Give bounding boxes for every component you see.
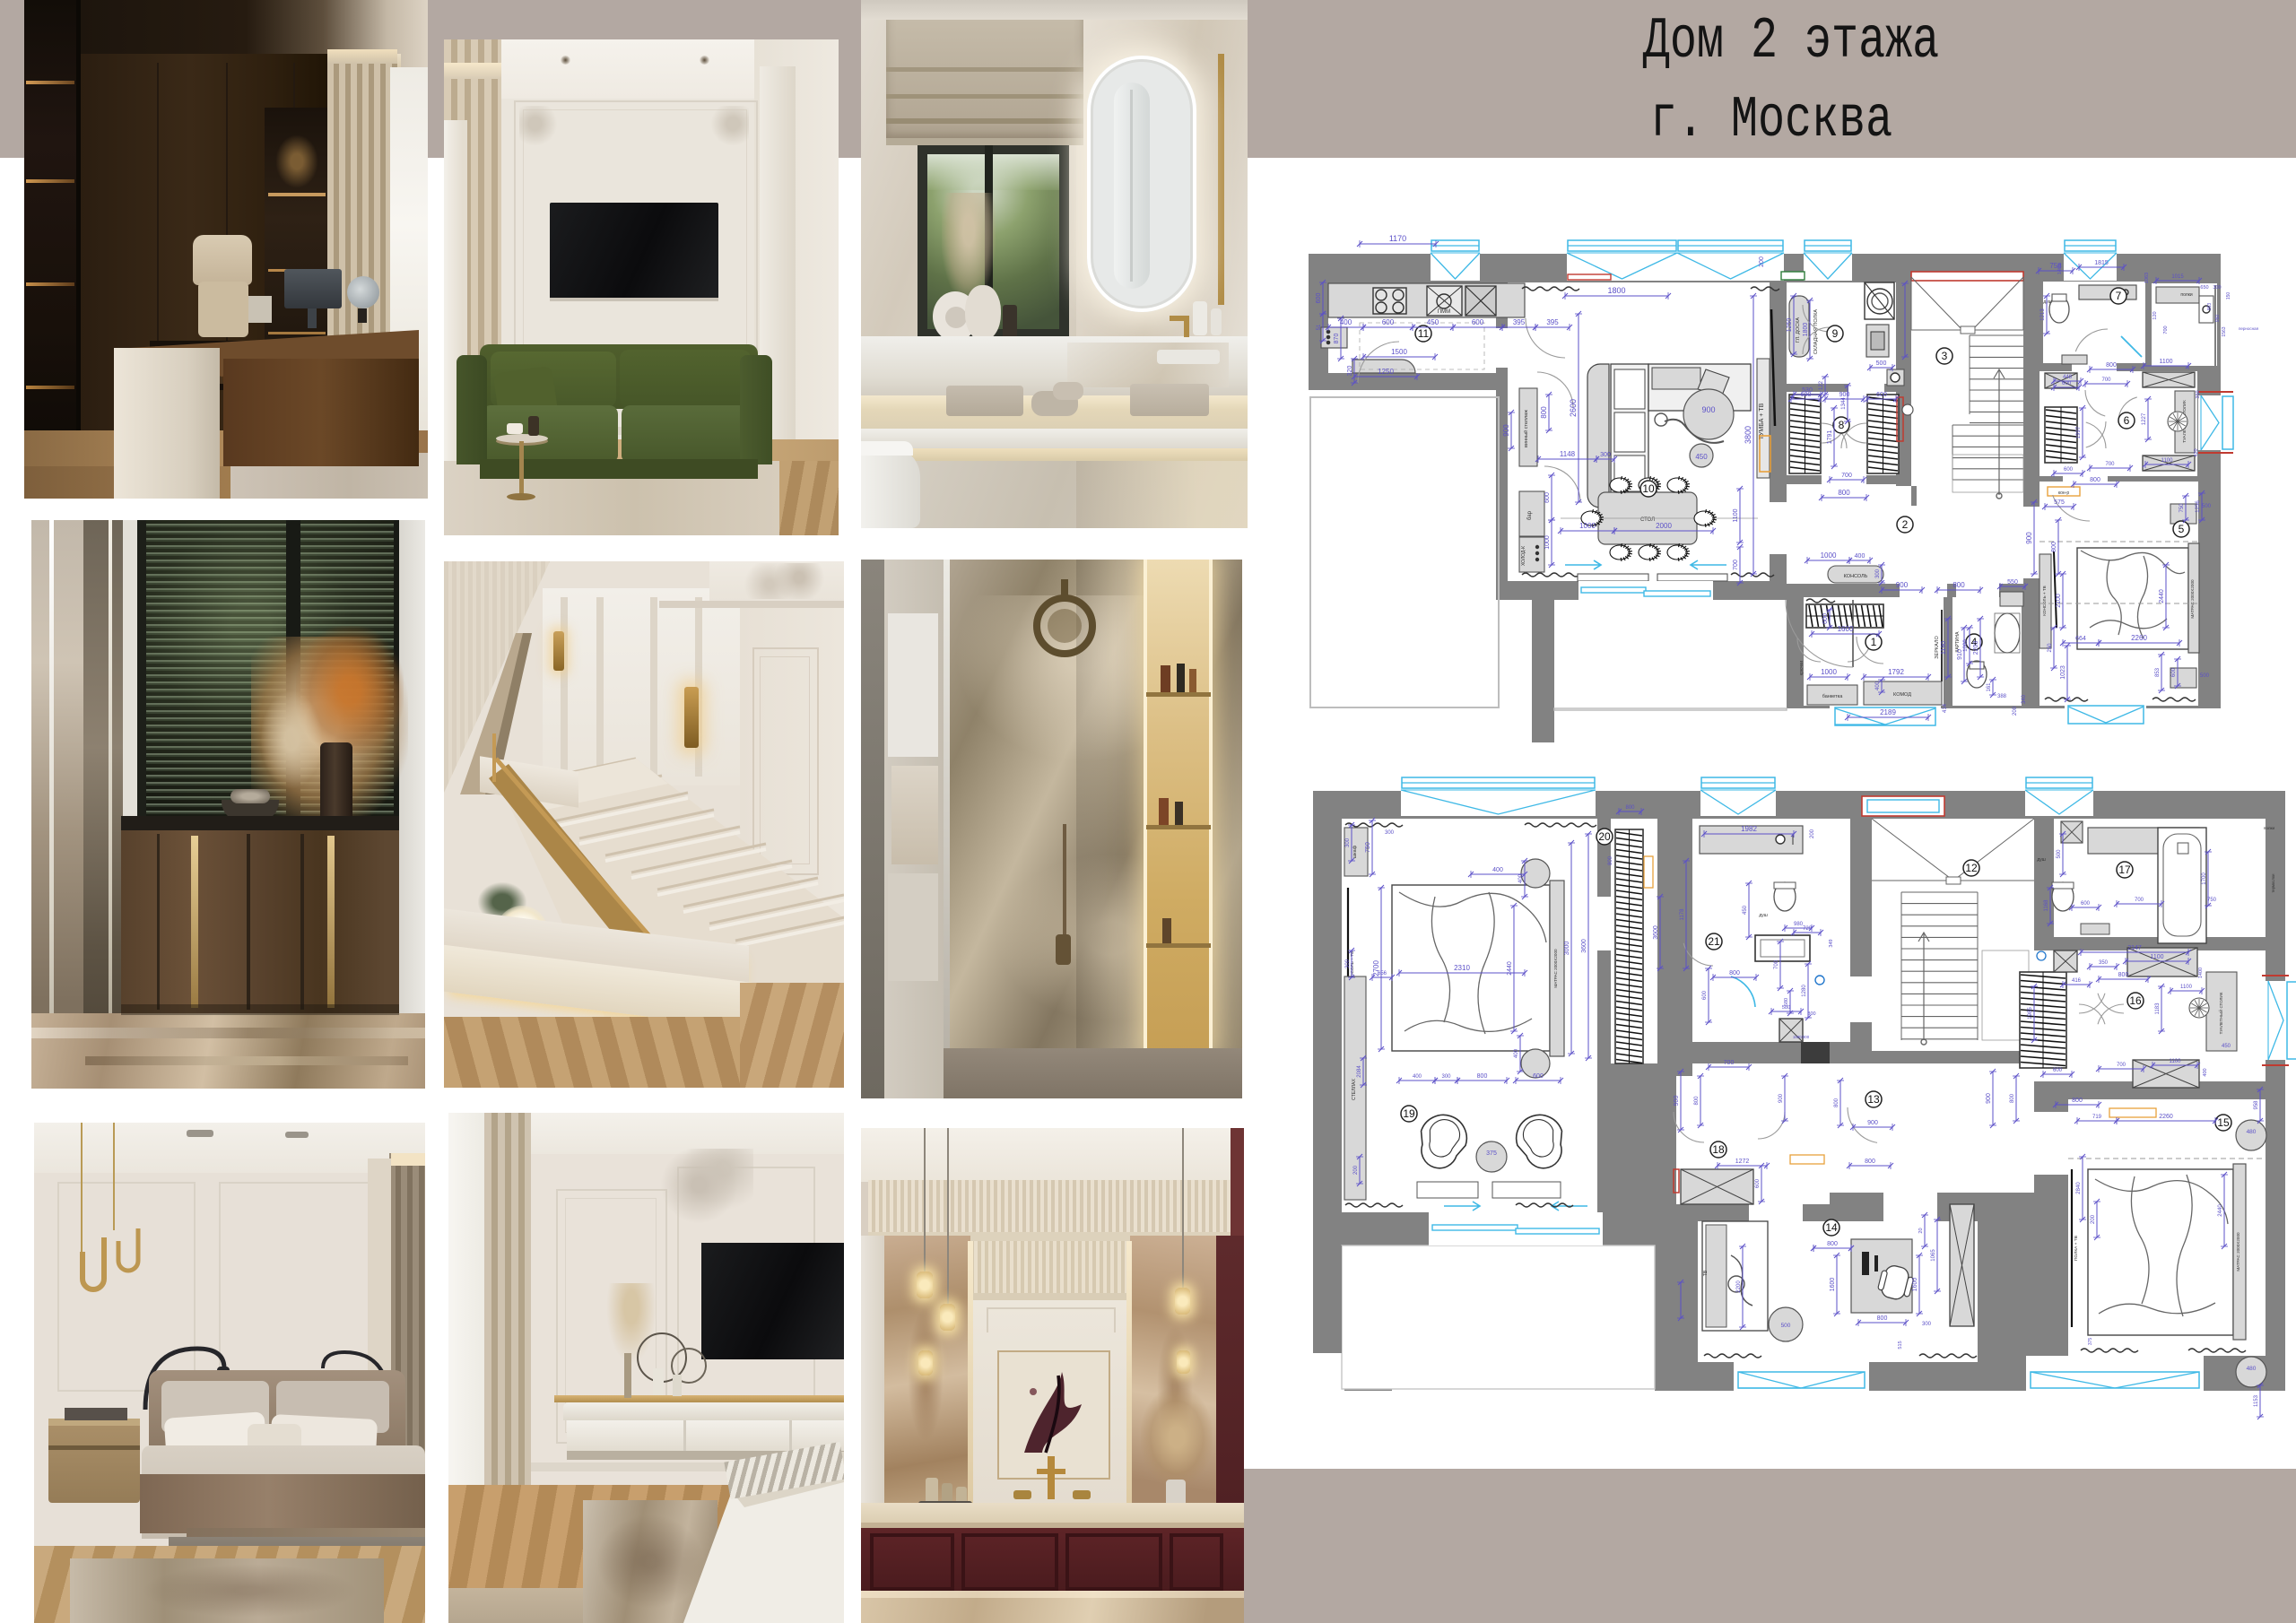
svg-text:500: 500 <box>2200 673 2210 679</box>
svg-text:МАТРАС 2000Х2000: МАТРАС 2000Х2000 <box>1553 949 1558 988</box>
svg-text:1000: 1000 <box>1821 668 1837 676</box>
svg-text:2260: 2260 <box>2131 634 2147 642</box>
svg-text:1800: 1800 <box>1607 286 1625 295</box>
svg-text:18: 18 <box>1712 1143 1725 1156</box>
svg-text:600: 600 <box>2064 467 2074 473</box>
svg-text:400: 400 <box>1855 553 1865 560</box>
svg-text:2440: 2440 <box>2159 589 2165 603</box>
svg-text:450: 450 <box>2222 1044 2231 1049</box>
svg-text:700: 700 <box>2163 325 2169 334</box>
svg-text:656: 656 <box>1378 971 1387 976</box>
svg-text:800: 800 <box>1477 1073 1488 1080</box>
svg-text:термослои: термослои <box>2271 873 2275 893</box>
svg-text:800: 800 <box>1865 1159 1875 1165</box>
svg-text:500: 500 <box>1781 1323 1791 1329</box>
svg-text:СТЕЛЛАХ: СТЕЛЛАХ <box>1352 1078 1357 1099</box>
svg-text:1148: 1148 <box>1560 450 1576 458</box>
svg-text:2100: 2100 <box>2056 594 2062 608</box>
svg-text:1600: 1600 <box>1912 1278 1918 1292</box>
svg-text:1100: 1100 <box>2170 1059 2182 1064</box>
svg-text:800: 800 <box>2072 1098 2083 1104</box>
svg-text:1100: 1100 <box>2161 458 2174 464</box>
svg-text:900: 900 <box>1839 392 1850 398</box>
svg-text:2260: 2260 <box>2159 1114 2173 1120</box>
svg-text:3000: 3000 <box>1564 942 1570 956</box>
svg-text:полки: полки <box>2180 292 2192 298</box>
svg-text:полки: полки <box>2264 826 2275 830</box>
svg-text:11: 11 <box>1418 327 1430 340</box>
svg-text:600: 600 <box>1822 613 1829 624</box>
svg-text:1100: 1100 <box>2159 359 2172 365</box>
svg-text:416: 416 <box>2072 978 2082 984</box>
svg-text:800: 800 <box>1838 489 1850 497</box>
svg-text:375: 375 <box>2088 1338 2093 1346</box>
svg-text:300: 300 <box>1807 1011 1815 1017</box>
svg-text:395: 395 <box>1513 318 1526 326</box>
svg-text:980: 980 <box>1794 922 1804 927</box>
svg-text:719: 719 <box>2092 1115 2102 1120</box>
svg-text:664: 664 <box>2075 636 2086 642</box>
svg-text:800: 800 <box>1608 855 1613 865</box>
svg-text:ЗЕРКАЛО: ЗЕРКАЛО <box>1935 636 1940 659</box>
svg-text:340: 340 <box>2022 694 2027 704</box>
svg-text:1063: 1063 <box>2144 273 2150 283</box>
svg-text:ТВ: ТВ <box>1703 1270 1709 1276</box>
svg-text:1250: 1250 <box>1787 318 1793 333</box>
svg-text:863: 863 <box>2207 303 2213 311</box>
svg-text:400: 400 <box>1514 1048 1519 1058</box>
svg-text:800: 800 <box>2118 972 2129 978</box>
svg-text:крючки: крючки <box>1799 661 1805 675</box>
svg-text:9: 9 <box>1832 327 1839 340</box>
svg-text:800: 800 <box>1625 805 1635 811</box>
svg-text:5: 5 <box>2179 523 2185 535</box>
svg-text:13: 13 <box>1867 1093 1880 1106</box>
svg-text:600: 600 <box>1801 392 1812 398</box>
svg-text:700: 700 <box>2105 462 2115 467</box>
svg-text:2: 2 <box>1902 518 1909 531</box>
svg-text:480: 480 <box>2247 1366 2257 1372</box>
svg-text:1100: 1100 <box>2150 954 2163 960</box>
svg-text:2200: 2200 <box>1736 1280 1742 1293</box>
svg-text:800: 800 <box>2090 477 2100 483</box>
svg-text:300: 300 <box>1385 830 1395 836</box>
svg-text:душ: душ <box>2043 299 2051 305</box>
svg-text:450: 450 <box>1427 318 1439 326</box>
svg-text:17: 17 <box>2118 864 2131 876</box>
svg-text:1800: 1800 <box>1803 323 1809 337</box>
svg-text:448: 448 <box>2063 375 2073 380</box>
svg-text:1000: 1000 <box>1963 639 1969 652</box>
svg-text:1: 1 <box>1871 636 1877 648</box>
svg-text:120: 120 <box>2152 311 2158 319</box>
svg-text:1403: 1403 <box>2057 264 2063 274</box>
svg-text:200: 200 <box>2091 1214 2096 1224</box>
svg-text:200: 200 <box>1759 256 1765 267</box>
svg-text:853: 853 <box>2155 667 2161 677</box>
svg-text:КОНСОЛЬ + ТВ: КОНСОЛЬ + ТВ <box>2042 586 2047 615</box>
svg-text:16: 16 <box>2129 994 2142 1007</box>
svg-text:1600: 1600 <box>1838 625 1854 633</box>
svg-text:1153: 1153 <box>2254 1394 2259 1407</box>
svg-text:2440: 2440 <box>1507 961 1513 976</box>
svg-text:2310: 2310 <box>1454 964 1470 972</box>
svg-text:450: 450 <box>1695 453 1708 461</box>
svg-text:1065: 1065 <box>1931 1249 1936 1262</box>
svg-text:1700: 1700 <box>2202 872 2207 885</box>
svg-text:400: 400 <box>2203 1068 2208 1076</box>
svg-text:8: 8 <box>1839 419 1845 431</box>
svg-text:2000: 2000 <box>1656 522 1672 530</box>
svg-text:1500: 1500 <box>1391 348 1407 356</box>
svg-text:800: 800 <box>1694 1096 1700 1106</box>
svg-text:ГЛ. ДОСКА: ГЛ. ДОСКА <box>1796 317 1801 343</box>
svg-text:900: 900 <box>1701 405 1715 414</box>
svg-text:51: 51 <box>1317 324 1322 330</box>
svg-text:600: 600 <box>2081 901 2091 907</box>
svg-text:2840: 2840 <box>2076 1182 2082 1194</box>
svg-text:800: 800 <box>1952 581 1965 589</box>
svg-text:14: 14 <box>1825 1221 1838 1234</box>
svg-text:300: 300 <box>1600 452 1611 458</box>
svg-text:650: 650 <box>2200 285 2208 291</box>
svg-text:МАТРАС 2000Х2000: МАТРАС 2000Х2000 <box>2190 579 2195 619</box>
svg-text:душ: душ <box>1759 913 1767 918</box>
svg-text:950: 950 <box>2215 315 2221 323</box>
svg-text:300: 300 <box>1922 1322 1932 1327</box>
svg-text:1280: 1280 <box>1802 985 1807 997</box>
svg-text:600: 600 <box>1755 1178 1761 1188</box>
svg-text:900: 900 <box>1986 1093 1992 1104</box>
svg-text:750: 750 <box>2179 503 2185 513</box>
svg-text:350: 350 <box>2099 960 2109 966</box>
svg-text:700: 700 <box>1774 959 1779 969</box>
svg-text:800: 800 <box>1540 406 1548 419</box>
svg-text:300: 300 <box>1875 568 1881 578</box>
svg-text:1272: 1272 <box>1735 1159 1750 1165</box>
svg-text:КАРТИНА: КАРТИНА <box>1955 631 1961 653</box>
svg-text:кон-р: кон-р <box>2058 490 2069 496</box>
svg-text:500: 500 <box>1876 360 1887 367</box>
svg-text:800: 800 <box>2106 362 2117 369</box>
svg-text:ПОЛКА + ТВ: ПОЛКА + ТВ <box>2074 1236 2079 1261</box>
svg-text:ТУМБА + ТВ: ТУМБА + ТВ <box>1759 403 1765 439</box>
svg-text:7: 7 <box>2116 290 2122 302</box>
svg-text:958: 958 <box>2254 1100 2259 1110</box>
svg-text:870: 870 <box>1334 334 1340 344</box>
svg-text:перносная: перносная <box>2239 326 2259 331</box>
svg-text:6: 6 <box>2124 414 2130 427</box>
svg-text:400: 400 <box>1413 1074 1422 1080</box>
svg-text:550: 550 <box>2007 579 2018 586</box>
svg-text:1791: 1791 <box>1827 430 1833 445</box>
svg-text:375: 375 <box>1486 1150 1497 1157</box>
svg-text:300: 300 <box>1441 1074 1451 1080</box>
svg-text:20: 20 <box>1918 1228 1924 1233</box>
svg-text:575: 575 <box>2054 499 2065 506</box>
svg-text:1000: 1000 <box>1821 551 1837 560</box>
svg-text:1015: 1015 <box>2171 274 2184 280</box>
svg-text:1982: 1982 <box>1741 825 1757 833</box>
svg-text:600: 600 <box>2062 381 2072 386</box>
svg-text:1000: 1000 <box>1579 522 1596 530</box>
svg-text:515: 515 <box>1898 1341 1903 1349</box>
svg-text:1023: 1023 <box>2060 665 2066 680</box>
svg-text:3800: 3800 <box>1744 426 1752 444</box>
svg-text:900: 900 <box>1896 581 1909 589</box>
svg-text:2440: 2440 <box>2218 1204 2223 1217</box>
svg-text:700: 700 <box>2135 898 2144 903</box>
svg-text:700: 700 <box>2101 378 2111 383</box>
svg-text:580: 580 <box>1784 998 1789 1006</box>
svg-text:ТУАЛЕТНЫЙ СТОЛИК: ТУАЛЕТНЫЙ СТОЛИК <box>2217 992 2223 1034</box>
svg-text:150: 150 <box>2226 292 2231 300</box>
svg-text:122: 122 <box>1819 380 1824 390</box>
svg-text:КОМОД: КОМОД <box>1893 692 1911 698</box>
svg-text:910: 910 <box>1957 649 1963 660</box>
svg-text:800: 800 <box>2010 1093 2015 1103</box>
svg-text:2189: 2189 <box>1880 708 1896 716</box>
svg-text:900: 900 <box>1779 1093 1784 1103</box>
svg-text:2600: 2600 <box>1569 399 1578 417</box>
svg-text:15: 15 <box>2217 1116 2230 1129</box>
svg-text:1178: 1178 <box>1680 908 1685 921</box>
svg-text:1168: 1168 <box>2044 899 2049 912</box>
svg-text:600: 600 <box>1702 990 1708 1000</box>
svg-text:900: 900 <box>1674 1096 1680 1107</box>
svg-text:700: 700 <box>1733 560 1739 570</box>
svg-text:200: 200 <box>1353 1165 1359 1175</box>
svg-text:2084: 2084 <box>1357 1065 1362 1078</box>
svg-text:600: 600 <box>1472 318 1484 326</box>
svg-text:1600: 1600 <box>1830 1278 1836 1292</box>
svg-text:10: 10 <box>1642 482 1655 495</box>
svg-text:3: 3 <box>1942 350 1948 362</box>
svg-text:900: 900 <box>1502 424 1510 437</box>
svg-text:ХОЛОД-К: ХОЛОД-К <box>1521 546 1526 566</box>
svg-text:1190: 1190 <box>1941 641 1947 655</box>
svg-text:1250: 1250 <box>1378 368 1394 376</box>
svg-text:12: 12 <box>1965 862 1978 874</box>
svg-text:450: 450 <box>1743 905 1748 915</box>
svg-text:200: 200 <box>1810 829 1815 838</box>
svg-text:500: 500 <box>2057 849 2062 859</box>
svg-text:800: 800 <box>1729 970 1740 976</box>
svg-text:400: 400 <box>1875 681 1881 690</box>
svg-text:600: 600 <box>1876 392 1887 398</box>
svg-text:душ: душ <box>2037 857 2045 863</box>
svg-text:1815: 1815 <box>2094 260 2109 266</box>
svg-text:750: 750 <box>1365 842 1371 853</box>
svg-text:900: 900 <box>2025 532 2033 544</box>
svg-text:600: 600 <box>2171 667 2177 677</box>
svg-text:161: 161 <box>1987 682 1992 692</box>
svg-text:400: 400 <box>1340 318 1352 326</box>
svg-text:300: 300 <box>1345 959 1351 968</box>
svg-text:1563: 1563 <box>2222 326 2227 336</box>
svg-text:1400: 1400 <box>2198 968 2204 978</box>
svg-text:400: 400 <box>1492 867 1503 873</box>
svg-text:900: 900 <box>1867 1120 1878 1126</box>
svg-text:250: 250 <box>2048 643 2053 653</box>
svg-text:1985: 1985 <box>2028 1007 2033 1020</box>
svg-text:1580/300: 1580/300 <box>1793 1035 1810 1039</box>
svg-text:300: 300 <box>2213 285 2221 291</box>
svg-text:388: 388 <box>1997 694 2007 699</box>
svg-text:КОНСОЛЬ: КОНСОЛЬ <box>1844 574 1868 579</box>
svg-text:700: 700 <box>2117 1063 2126 1068</box>
svg-text:414: 414 <box>1943 703 1948 713</box>
svg-text:2147: 2147 <box>2127 945 2142 951</box>
svg-text:2203: 2203 <box>1973 641 1979 655</box>
svg-text:банкетка: банкетка <box>1822 694 1844 699</box>
svg-text:600: 600 <box>1382 318 1395 326</box>
svg-text:МАТРАС 2000Х2000: МАТРАС 2000Х2000 <box>2236 1232 2240 1271</box>
svg-text:1792: 1792 <box>1888 668 1904 676</box>
svg-text:800: 800 <box>1834 1098 1839 1107</box>
svg-text:800: 800 <box>2051 542 2057 552</box>
svg-text:420: 420 <box>2194 448 2199 456</box>
svg-text:бар: бар <box>1527 510 1533 520</box>
svg-text:1997: 1997 <box>2076 426 2082 438</box>
svg-text:3600: 3600 <box>1653 925 1659 940</box>
svg-text:600: 600 <box>1544 492 1551 503</box>
svg-text:395: 395 <box>1546 318 1559 326</box>
svg-text:480: 480 <box>2247 1129 2257 1135</box>
svg-text:1213: 1213 <box>2040 308 2046 321</box>
svg-text:700: 700 <box>1724 1060 1735 1066</box>
svg-text:19: 19 <box>1403 1107 1415 1120</box>
svg-text:600: 600 <box>1533 1073 1544 1080</box>
svg-text:1227: 1227 <box>2142 412 2147 425</box>
svg-text:349: 349 <box>1829 939 1834 947</box>
svg-text:700: 700 <box>1841 473 1852 479</box>
svg-text:320: 320 <box>1347 366 1353 377</box>
svg-text:1170: 1170 <box>1389 234 1406 243</box>
svg-text:21: 21 <box>1708 935 1720 948</box>
svg-text:800: 800 <box>1827 1241 1838 1247</box>
svg-text:200: 200 <box>2013 706 2018 716</box>
svg-text:600: 600 <box>2053 1068 2063 1073</box>
svg-text:3600: 3600 <box>1581 939 1587 953</box>
svg-text:1100: 1100 <box>2180 985 2193 990</box>
svg-text:1183: 1183 <box>2155 1002 2161 1015</box>
svg-text:800: 800 <box>1877 1315 1888 1322</box>
svg-text:1000: 1000 <box>1544 535 1551 550</box>
svg-text:750: 750 <box>2207 898 2217 903</box>
svg-text:300: 300 <box>1345 838 1351 847</box>
svg-text:1100: 1100 <box>1733 508 1739 522</box>
svg-text:20: 20 <box>1598 830 1611 843</box>
svg-text:1256: 1256 <box>2196 500 2201 513</box>
svg-text:600: 600 <box>1316 293 1322 304</box>
svg-text:400: 400 <box>1518 873 1524 883</box>
svg-text:шкаф: шкаф <box>1352 845 1358 858</box>
svg-text:ПММ: ПММ <box>1438 309 1450 315</box>
svg-text:500: 500 <box>2202 504 2212 509</box>
svg-text:350: 350 <box>2196 390 2201 398</box>
svg-text:винный стеллаж: винный стеллаж <box>1523 410 1529 447</box>
